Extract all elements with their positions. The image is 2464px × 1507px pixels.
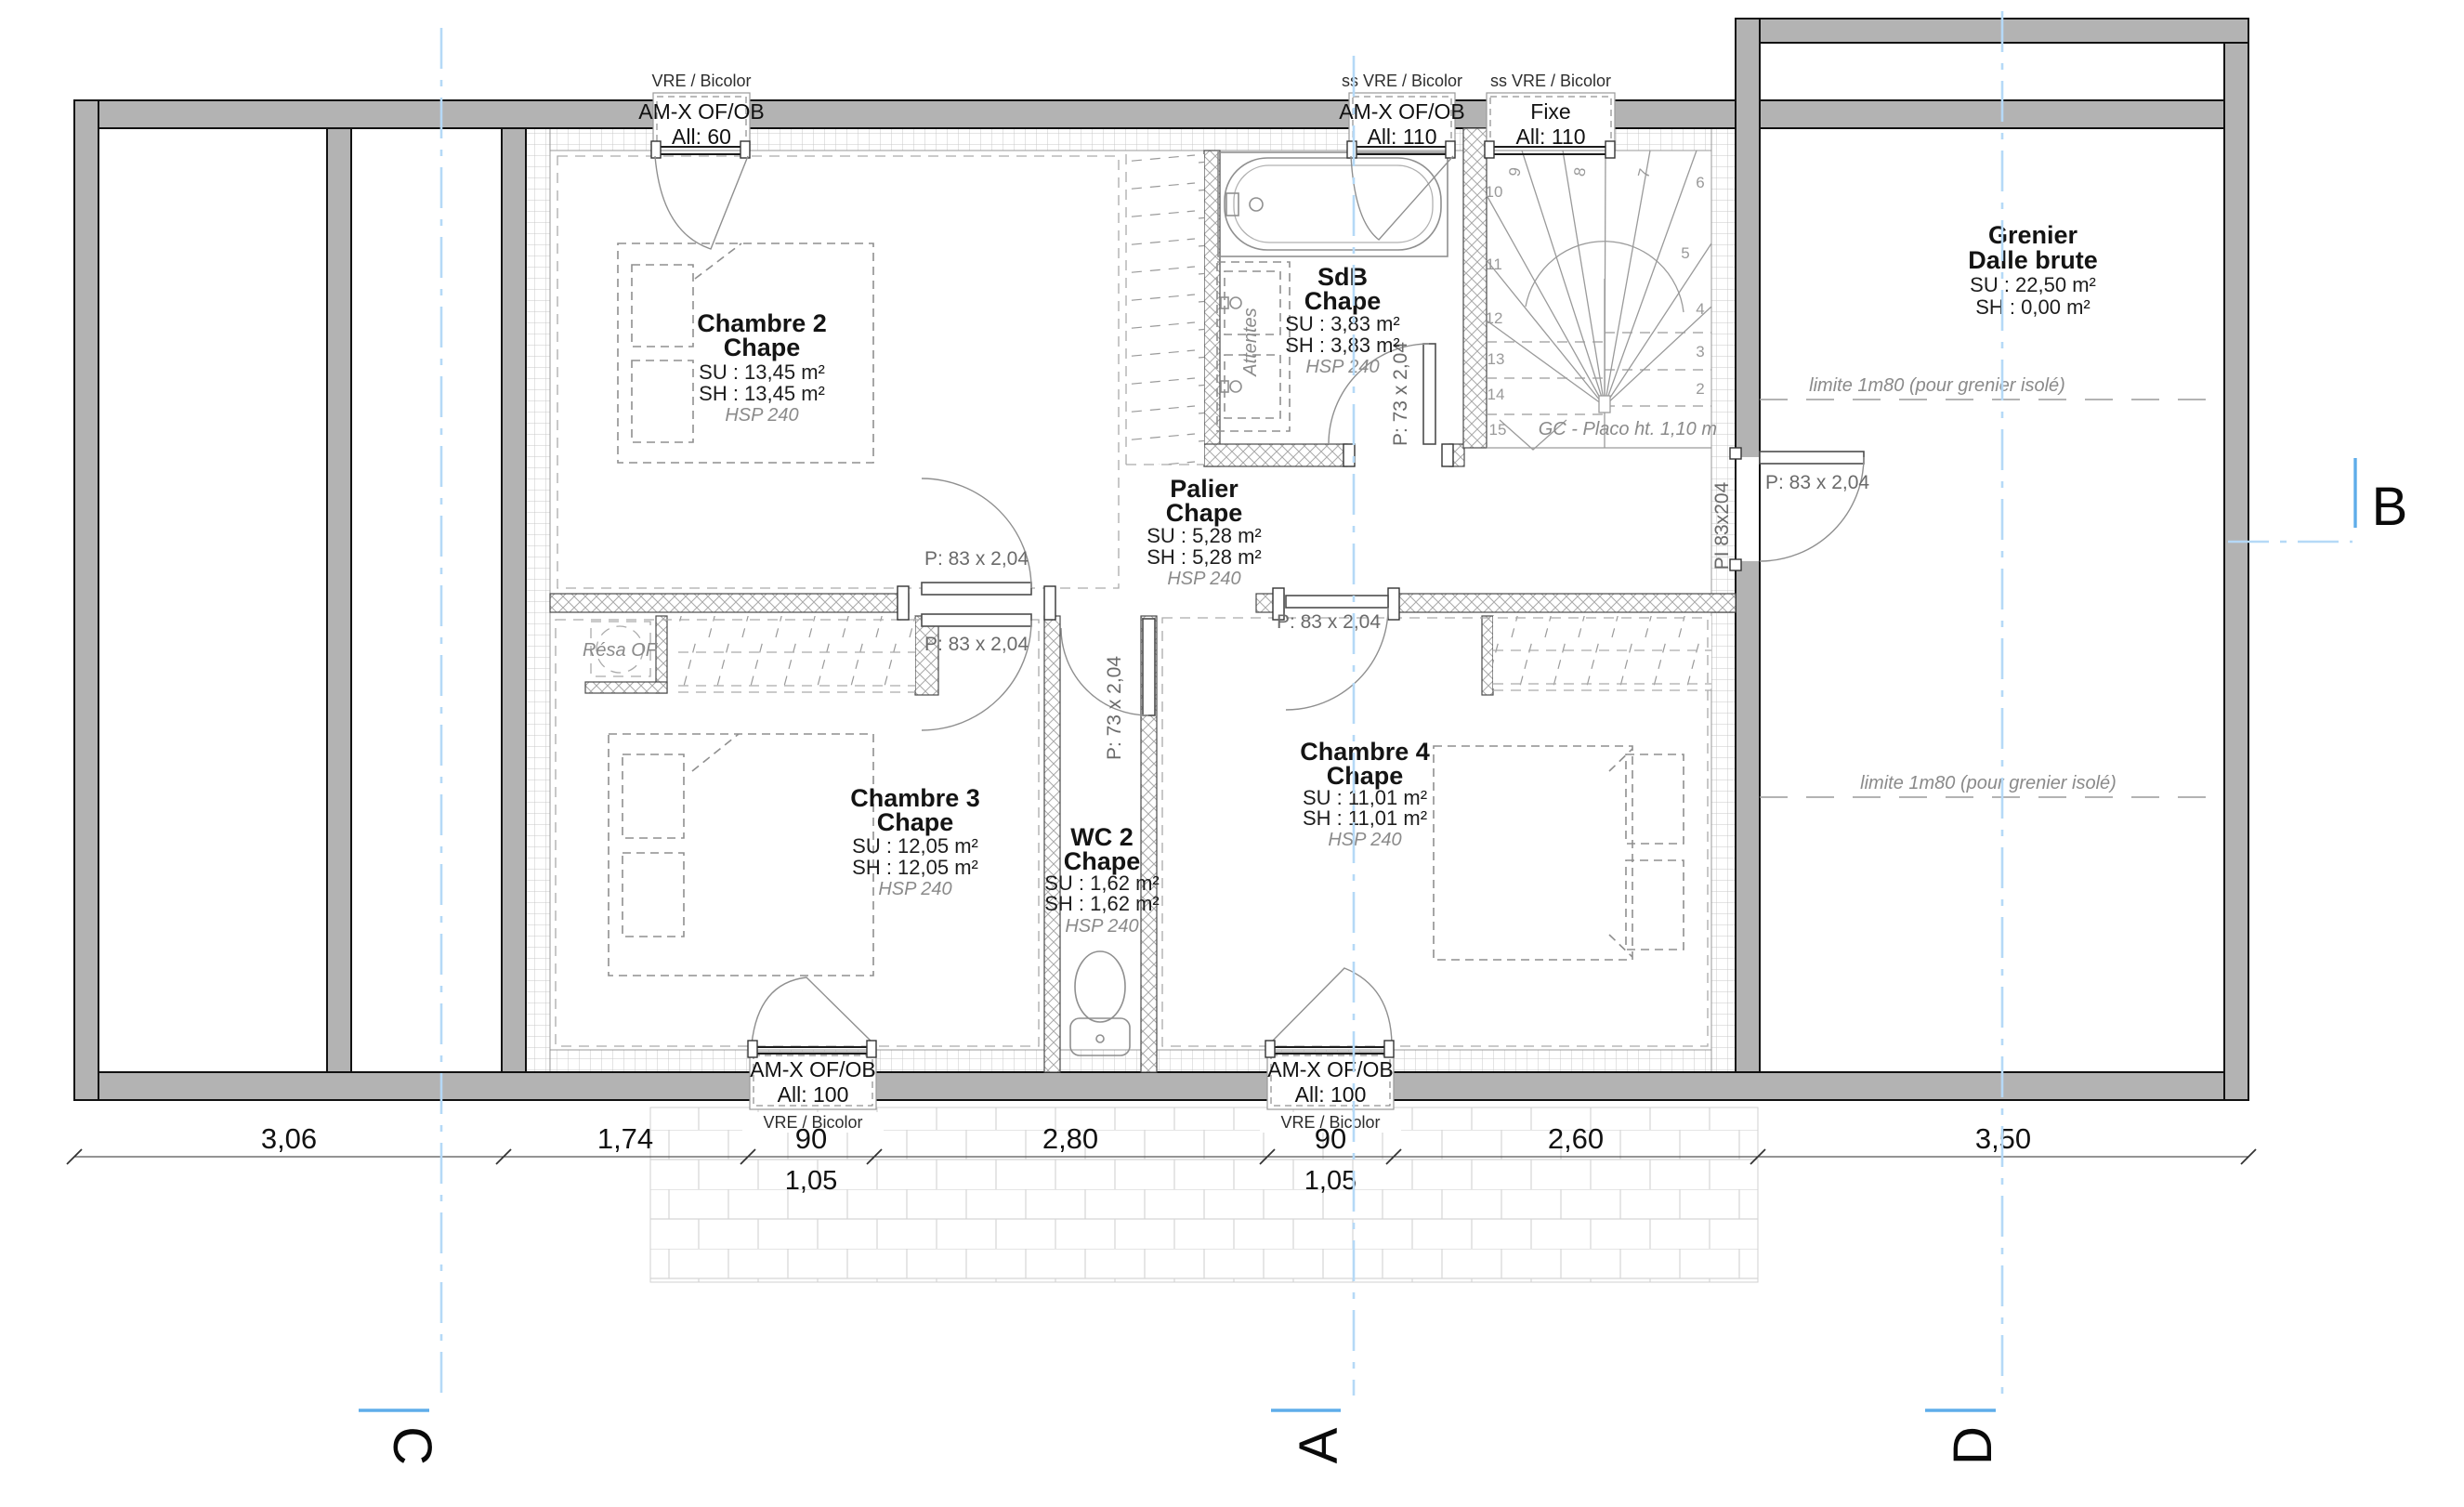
stair-tread-12: 12 [1486,309,1503,327]
dim-90-left: 90 [795,1122,827,1155]
stair-tread-10: 10 [1486,183,1503,201]
stair-tread-4: 4 [1696,300,1704,318]
window-top-middle: ss VRE / Bicolor AM-X OF/OB All: 110 [1339,72,1464,240]
window-top-left-type: AM-X OF/OB [638,99,764,124]
toilet [1070,951,1130,1055]
label-grenier: Grenier Dalle brute SU : 22,50 m² SH : 0… [1968,221,2098,319]
chambre4-sh: SH : 11,01 m² [1303,806,1427,830]
door-chambre4: P: 83 x 2,04 [1273,588,1399,710]
stair-tread-2: 2 [1696,380,1704,398]
window-bottom-left-allege: All: 100 [778,1082,849,1107]
floor-plan-page: Résa OF 2 3 4 5 6 7 8 9 10 11 12 13 14 1… [0,0,2464,1507]
palier-sh: SH : 5,28 m² [1147,545,1261,569]
window-top-left-header: VRE / Bicolor [651,72,751,90]
label-chambre3: Chambre 3 Chape SU : 12,05 m² SH : 12,05… [850,784,980,899]
window-bottom-right-allege: All: 100 [1295,1082,1367,1107]
grenier-finish: Dalle brute [1968,246,2098,274]
door-chambre4-size: P: 83 x 2,04 [1277,611,1381,633]
label-sdb: SdB Chape SU : 3,83 m² SH : 3,83 m² HSP … [1285,263,1399,377]
dim-2-80: 2,80 [1042,1122,1098,1155]
dim-1-05-left: 1,05 [785,1166,837,1196]
grenier-limits: limite 1m80 (pour grenier isolé) limite … [1760,375,2224,797]
window-bottom-left-type: AM-X OF/OB [750,1057,875,1081]
section-marker-b: B [2372,477,2408,537]
stair-tread-13: 13 [1488,350,1505,368]
window-bottom-right-type: AM-X OF/OB [1267,1057,1393,1081]
stair-tread-14: 14 [1488,386,1505,403]
label-chambre2: Chambre 2 Chape SU : 13,45 m² SH : 13,45… [697,309,827,426]
sdb-hsp: HSP 240 [1305,357,1379,377]
palier-su: SU : 5,28 m² [1147,524,1261,547]
attentes-label: Attentes [1240,308,1261,376]
room-labels: Chambre 2 Chape SU : 13,45 m² SH : 13,45… [697,221,2098,937]
palier-hsp: HSP 240 [1167,569,1240,589]
grenier-sh: SH : 0,00 m² [1975,295,2090,319]
chambre2-hsp: HSP 240 [725,405,798,426]
window-top-left: VRE / Bicolor AM-X OF/OB All: 60 [638,72,764,249]
door-grenier-block: PI 83x204 [1711,481,1733,570]
limite-note-1: limite 1m80 (pour grenier isolé) [1809,375,2065,396]
stair-tread-7: 7 [1634,167,1654,180]
resa-of-niche: Résa OF [583,622,659,676]
label-palier: Palier Chape SU : 5,28 m² SH : 5,28 m² H… [1147,475,1261,589]
door-grenier-size: P: 83 x 2,04 [1765,472,1869,493]
door-wc2-size: P: 73 x 2,04 [1104,656,1125,760]
bed-chambre3 [609,734,873,976]
floor-plan-drawing: Résa OF 2 3 4 5 6 7 8 9 10 11 12 13 14 1… [0,0,2464,1507]
chambre3-su: SU : 12,05 m² [852,834,978,858]
chambre4-hsp: HSP 240 [1328,830,1401,850]
window-fixed-header: ss VRE / Bicolor [1490,72,1611,90]
section-marker-a: A [1289,1427,1349,1463]
limite-note-2: limite 1m80 (pour grenier isolé) [1860,773,2117,793]
stairwell: 2 3 4 5 6 7 8 9 10 11 12 13 14 15 GC - P… [1486,151,1717,450]
grenier-su: SU : 22,50 m² [1970,273,2096,296]
stair-tread-5: 5 [1681,244,1689,262]
door-chambre3-size: P: 83 x 2,04 [924,634,1029,655]
chambre2-finish: Chape [724,334,801,361]
window-top-left-allege: All: 60 [672,124,731,149]
door-sdb-size: P: 73 x 2,04 [1390,342,1411,446]
window-fixed: ss VRE / Bicolor Fixe All: 110 [1485,72,1615,158]
chambre3-sh: SH : 12,05 m² [852,856,978,879]
chambre2-su: SU : 13,45 m² [699,360,825,384]
stair-tread-3: 3 [1696,343,1704,360]
stair-tread-9: 9 [1505,166,1524,178]
window-top-middle-type: AM-X OF/OB [1339,99,1464,124]
sdb-su: SU : 3,83 m² [1285,312,1399,335]
wc2-hsp: HSP 240 [1065,916,1138,937]
sdb-finish: Chape [1304,287,1382,315]
chambre3-hsp: HSP 240 [878,879,951,899]
dim-90-right: 90 [1315,1122,1346,1155]
chambre2-sh: SH : 13,45 m² [699,382,825,405]
dim-3-06: 3,06 [261,1122,317,1155]
section-marker-c: C [382,1426,442,1465]
window-bottom-left: AM-X OF/OB All: 100 VRE / Bicolor [742,977,884,1133]
gc-placo-note: GC - Placo ht. 1,10 m [1539,419,1717,439]
vanity: Attentes [1217,262,1290,431]
window-top-middle-header: ss VRE / Bicolor [1342,72,1462,90]
resa-of-label: Résa OF [583,640,659,661]
sdb-sh: SH : 3,83 m² [1285,334,1399,357]
door-chambre2: P: 83 x 2,04 [898,478,1055,620]
wc2-sh: SH : 1,62 m² [1044,892,1159,915]
bed-chambre4 [1434,746,1684,960]
dim-1-74: 1,74 [597,1122,653,1155]
stair-tread-15: 15 [1489,421,1507,439]
palier-finish: Chape [1166,499,1243,527]
section-marker-d: D [1943,1426,2003,1465]
stair-tread-6: 6 [1696,174,1704,191]
dim-2-60: 2,60 [1548,1122,1604,1155]
window-top-middle-allege: All: 110 [1367,124,1436,149]
stair-tread-11: 11 [1486,256,1502,273]
chambre3-finish: Chape [877,808,954,836]
stair-tread-8: 8 [1570,166,1589,178]
window-fixed-type: Fixe [1530,99,1570,124]
window-fixed-allege: All: 110 [1515,124,1585,149]
bathtub [1218,152,1448,256]
door-chambre2-size: P: 83 x 2,04 [924,548,1029,570]
label-chambre4: Chambre 4 Chape SU : 11,01 m² SH : 11,01… [1300,738,1430,850]
dim-1-05-right: 1,05 [1304,1166,1357,1196]
